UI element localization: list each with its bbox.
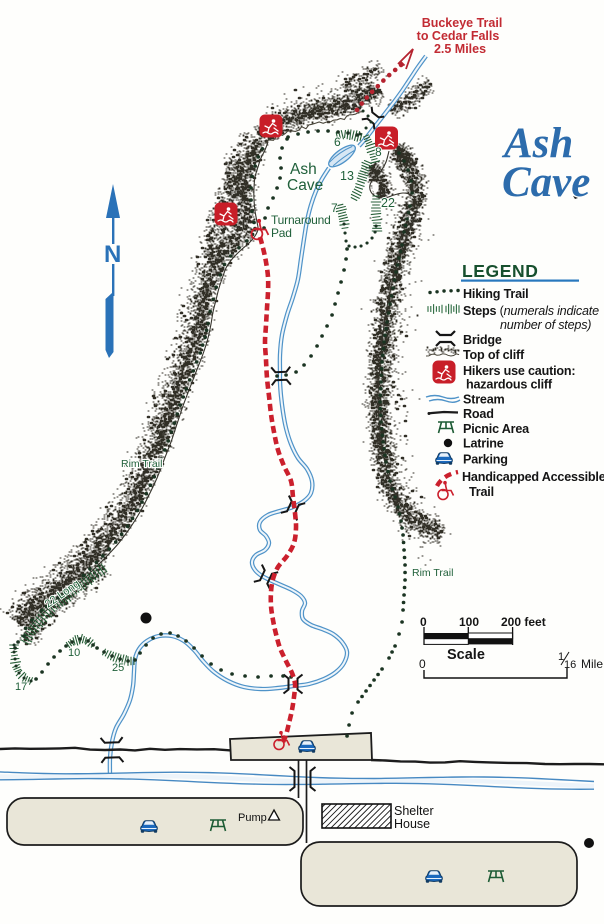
svg-text:Trail: Trail: [469, 485, 494, 499]
svg-text:Parking: Parking: [463, 453, 508, 467]
svg-text:100: 100: [459, 615, 479, 629]
svg-text:7: 7: [331, 201, 338, 215]
svg-text:House: House: [394, 817, 430, 831]
svg-text:Buckeye Trail: Buckeye Trail: [422, 16, 503, 30]
svg-text:0: 0: [419, 657, 426, 671]
svg-text:6: 6: [334, 135, 341, 149]
svg-text:Steps (numerals indicate: Steps (numerals indicate: [463, 304, 599, 318]
svg-text:Rim Trail: Rim Trail: [412, 567, 453, 579]
svg-text:8: 8: [375, 145, 382, 159]
svg-text:25: 25: [112, 662, 124, 674]
svg-text:Handicapped Accessible: Handicapped Accessible: [462, 470, 604, 484]
svg-text:LEGEND: LEGEND: [462, 261, 539, 281]
svg-text:Scale: Scale: [447, 647, 485, 663]
svg-text:to Cedar Falls: to Cedar Falls: [417, 29, 500, 43]
svg-text:hazardous cliff: hazardous cliff: [466, 378, 553, 392]
svg-text:Cave: Cave: [287, 177, 323, 194]
svg-text:Bridge: Bridge: [463, 333, 502, 347]
svg-text:Mile: Mile: [581, 657, 603, 671]
svg-text:Stream: Stream: [463, 393, 505, 407]
svg-text:Pump: Pump: [238, 812, 267, 824]
svg-text:number of steps): number of steps): [500, 318, 591, 332]
svg-text:22: 22: [381, 196, 395, 210]
svg-text:2.5 Miles: 2.5 Miles: [434, 42, 486, 56]
svg-text:17: 17: [15, 681, 27, 693]
svg-text:Latrine: Latrine: [463, 437, 504, 451]
svg-text:13: 13: [340, 169, 354, 183]
svg-text:200 feet: 200 feet: [501, 615, 546, 629]
svg-text:Top of cliff: Top of cliff: [463, 348, 525, 362]
svg-text:Hiking Trail: Hiking Trail: [463, 287, 528, 301]
svg-text:0: 0: [420, 615, 427, 629]
svg-text:10: 10: [68, 647, 80, 659]
svg-text:Pad: Pad: [271, 226, 292, 240]
svg-text:Hikers use caution:: Hikers use caution:: [463, 364, 575, 378]
svg-text:16: 16: [564, 659, 576, 671]
svg-text:Shelter: Shelter: [394, 804, 434, 818]
svg-text:Turnaround: Turnaround: [271, 213, 331, 227]
svg-text:Picnic Area: Picnic Area: [463, 422, 530, 436]
svg-text:Cave: Cave: [502, 159, 590, 206]
svg-text:Ash: Ash: [290, 161, 317, 178]
svg-text:N: N: [104, 241, 121, 268]
svg-text:Road: Road: [463, 407, 494, 421]
svg-text:Rim Trail: Rim Trail: [121, 458, 162, 470]
